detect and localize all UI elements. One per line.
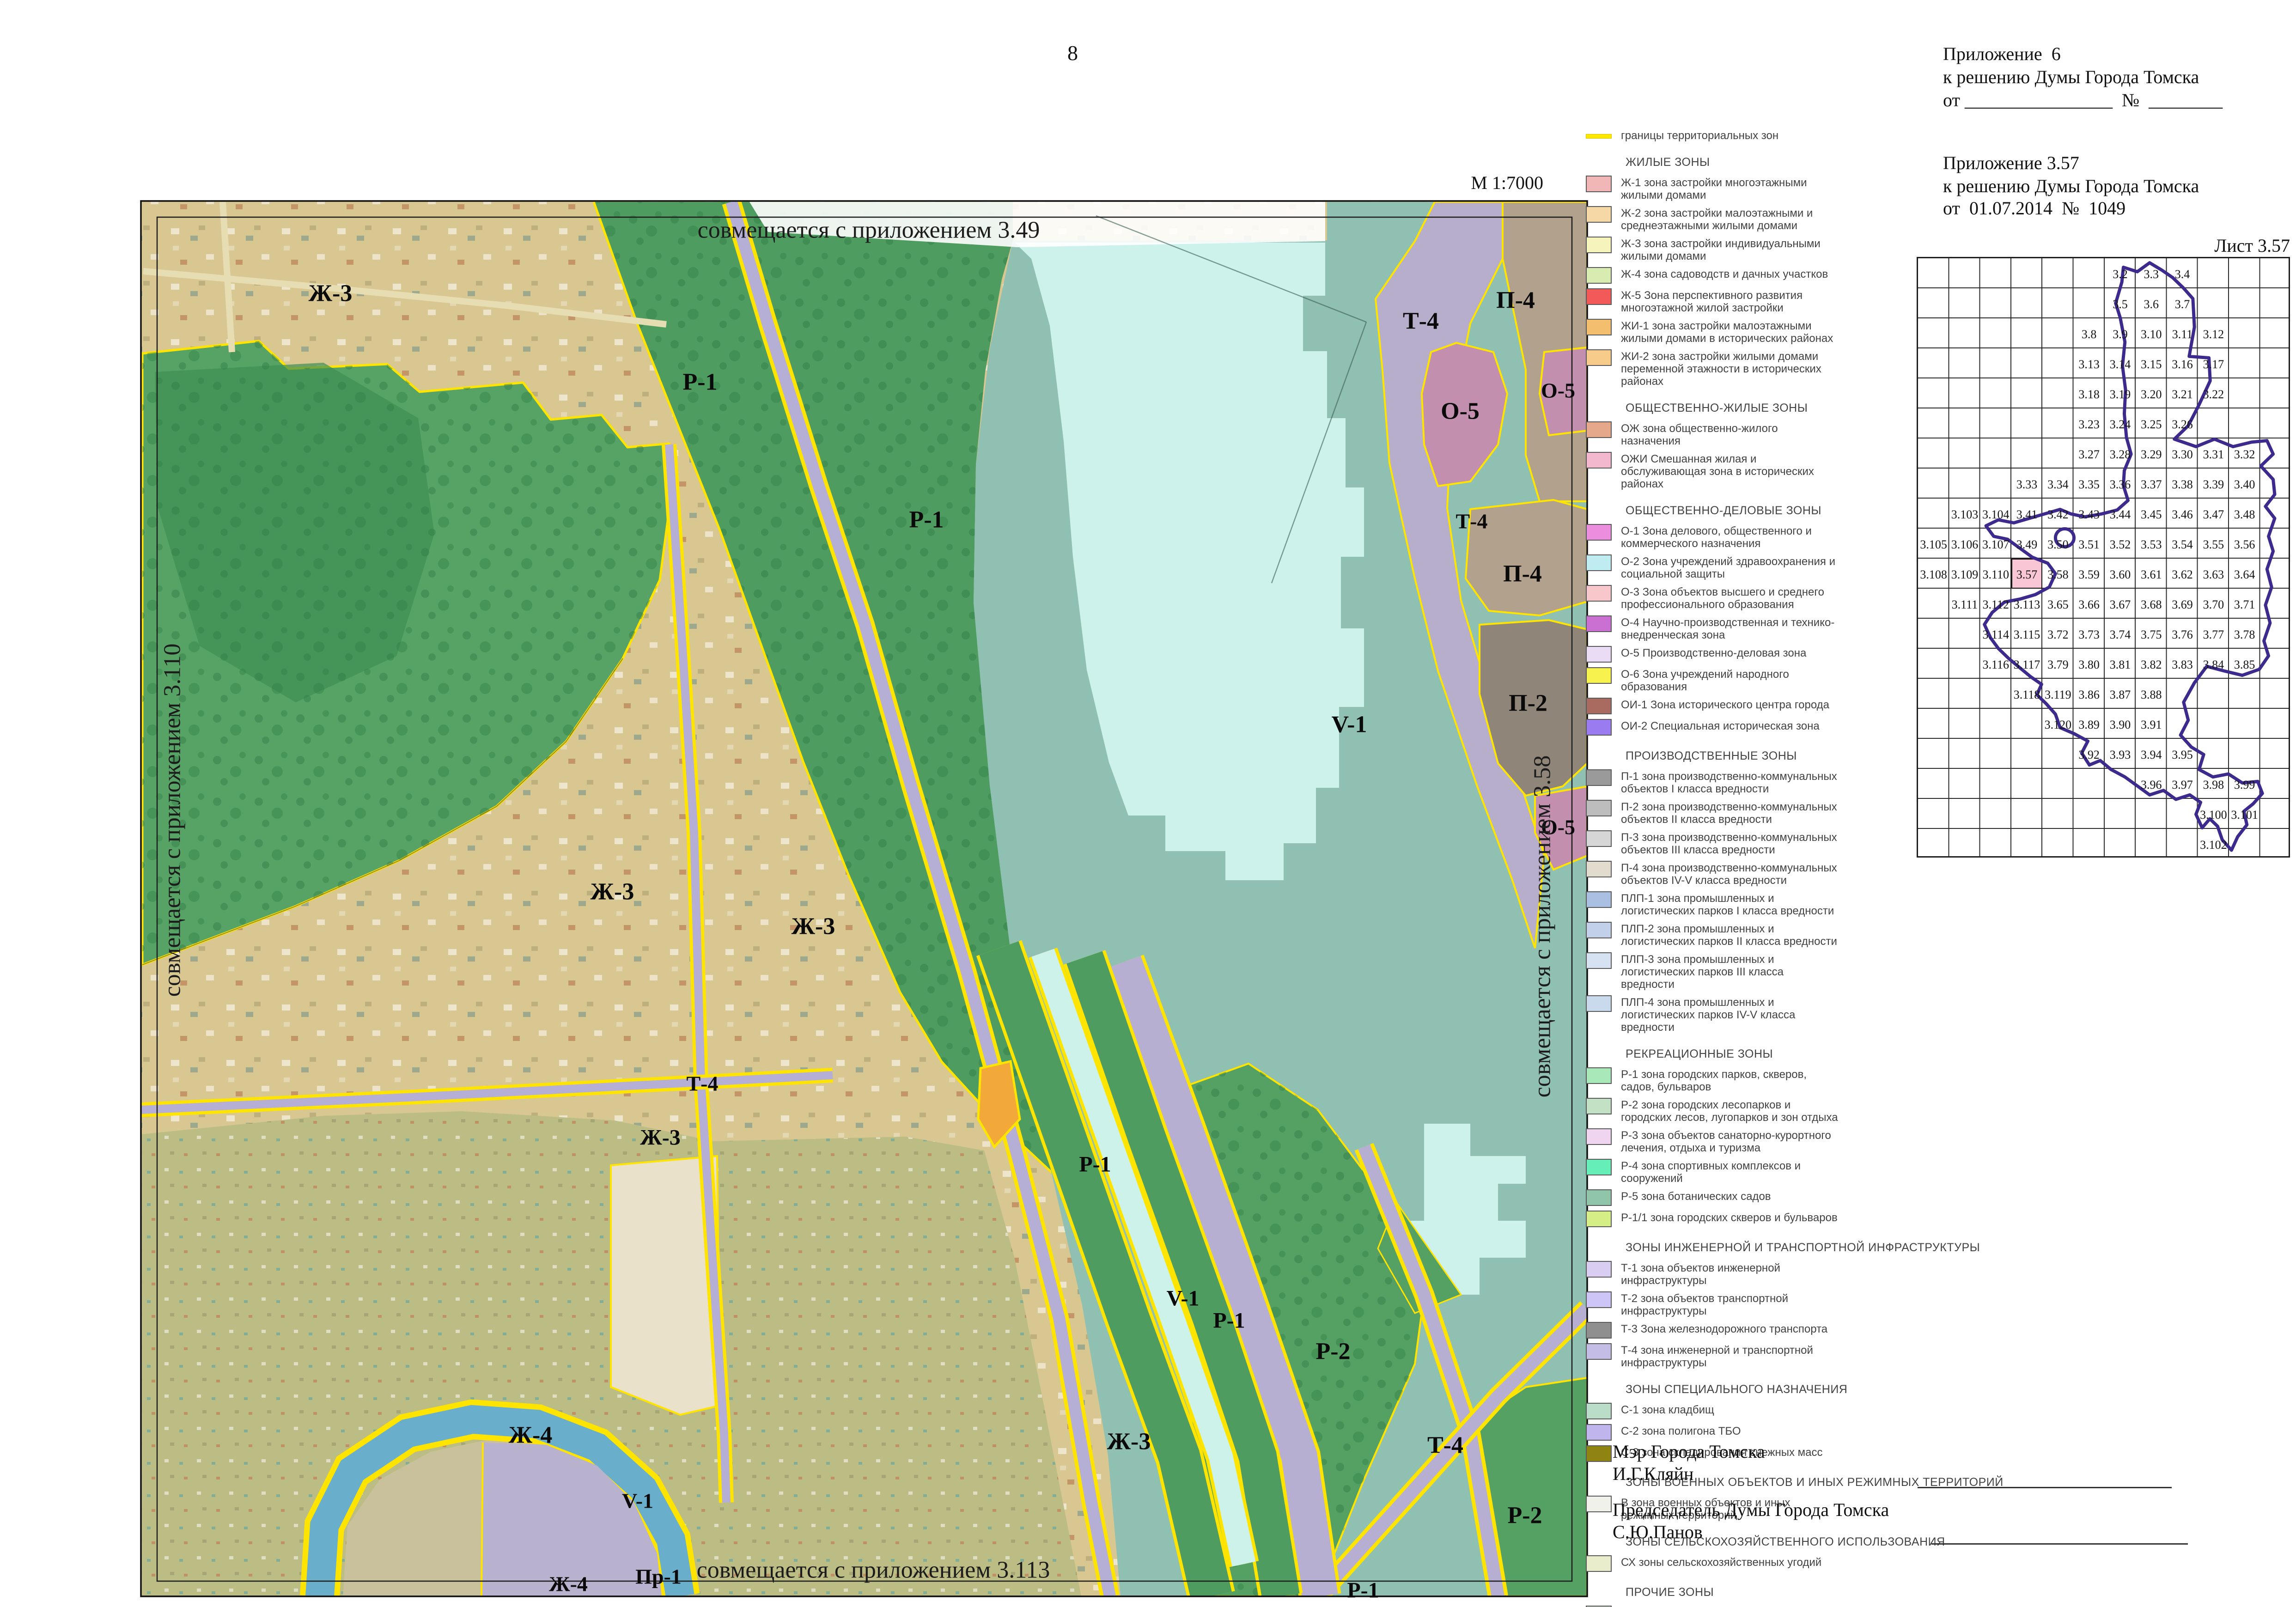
zone-label-Т-4: Т-4: [1456, 509, 1488, 534]
index-cell-3.35: 3.35: [2078, 478, 2100, 492]
zone-label-П-2: П-2: [1509, 690, 1547, 717]
zoning-map-sheet: Ж-3Р-1Р-1Т-4П-4О-5О-5Т-4П-4П-2О-5V-1Ж-3Ж…: [0, 0, 2296, 1607]
zone-label-Ж-3: Ж-3: [1107, 1428, 1151, 1455]
legend-swatch: [1586, 206, 1612, 223]
legend-item: Р-3 зона объектов санаторно-курортного л…: [1586, 1128, 2071, 1154]
index-cell-3.14: 3.14: [2110, 358, 2131, 371]
index-cell-3.83: 3.83: [2172, 658, 2193, 672]
zone-label-Р-2: Р-2: [1315, 1338, 1350, 1365]
legend-swatch: [1586, 1291, 1612, 1308]
index-cell-3.2: 3.2: [2113, 268, 2128, 281]
index-cell-3.3: 3.3: [2144, 268, 2159, 281]
legend-item: Т-1 зона объектов инженерной инфраструкт…: [1586, 1261, 2071, 1287]
legend-item-label: Ж-4 зона садоводств и дачных участков: [1621, 267, 1838, 280]
index-cell-3.8: 3.8: [2082, 328, 2097, 341]
index-cell-3.9: 3.9: [2113, 328, 2128, 341]
legend-swatch: [1586, 922, 1612, 938]
legend-section-header: ЗОНЫ ИНЖЕНЕРНОЙ И ТРАНСПОРТНОЙ ИНФРАСТРУ…: [1626, 1241, 2071, 1254]
appendix-6-line2: к решению Думы Города Томска: [1943, 66, 2199, 89]
edge-label: совмещается с приложением 3.58: [1529, 755, 1556, 1098]
legend: границы территориальных зонЖИЛЫЕ ЗОНЫЖ-1…: [1586, 128, 2071, 1607]
legend-item-label: ПЛП-4 зона промышленных и логистических …: [1621, 995, 1838, 1034]
zone-label-О-5: О-5: [1441, 398, 1480, 425]
legend-item: Р-1/1 зона городских скверов и бульваров: [1586, 1211, 2071, 1227]
zone-label-Ж-3: Ж-3: [591, 878, 634, 906]
legend-item-label: ОИ-2 Специальная историческая зона: [1621, 719, 1838, 732]
index-cell-3.90: 3.90: [2110, 718, 2131, 732]
index-cell-3.13: 3.13: [2078, 358, 2100, 371]
index-cell-3.40: 3.40: [2234, 478, 2255, 492]
legend-swatch: [1586, 646, 1612, 663]
index-cell-3.64: 3.64: [2234, 568, 2255, 582]
index-cell-3.69: 3.69: [2172, 598, 2193, 612]
index-cell-3.75: 3.75: [2141, 628, 2162, 642]
index-cell-3.97: 3.97: [2172, 778, 2193, 792]
index-cell-3.43: 3.43: [2078, 508, 2100, 522]
index-cell-3.55: 3.55: [2203, 538, 2224, 552]
legend-item: Т-2 зона объектов транспортной инфрастру…: [1586, 1291, 2071, 1317]
zone-label-Ж-4: Ж-4: [549, 1572, 588, 1596]
legend-item-label: ЖИ-1 зона застройки малоэтажными жилыми …: [1621, 319, 1838, 345]
legend-item: О-6 Зона учреждений народного образовани…: [1586, 667, 2071, 693]
index-cell-3.45: 3.45: [2141, 508, 2162, 522]
legend-item-label: С-2 зона полигона ТБО: [1621, 1424, 1838, 1437]
index-cell-3.28: 3.28: [2110, 448, 2131, 462]
index-cell-3.59: 3.59: [2078, 568, 2100, 582]
legend-swatch: [1586, 615, 1612, 632]
legend-item: границы территориальных зон: [1586, 128, 2071, 142]
legend-item-label: О-6 Зона учреждений народного образовани…: [1621, 667, 1838, 693]
appendix-6-line1: Приложение 6: [1943, 43, 2061, 66]
index-cell-3.21: 3.21: [2172, 388, 2193, 402]
legend-section-header: ОБЩЕСТВЕННО-ДЕЛОВЫЕ ЗОНЫ: [1626, 504, 2071, 517]
zone-label-О-5: О-5: [1541, 378, 1575, 403]
index-cell-3.27: 3.27: [2078, 448, 2100, 462]
legend-swatch: [1586, 585, 1612, 602]
index-cell-3.71: 3.71: [2234, 598, 2255, 612]
index-cell-3.92: 3.92: [2078, 748, 2100, 762]
index-cell-3.100: 3.100: [2200, 808, 2227, 822]
index-cell-3.31: 3.31: [2203, 448, 2224, 462]
legend-item: О-1 Зона делового, общественного и комме…: [1586, 524, 2071, 550]
legend-item: ОЖИ Смешанная жилая и обслуживающая зона…: [1586, 452, 2071, 490]
legend-item: О-2 Зона учреждений здравоохранения и со…: [1586, 554, 2071, 580]
index-cell-3.94: 3.94: [2141, 748, 2162, 762]
index-cell-3.66: 3.66: [2078, 598, 2100, 612]
zone-label-Ж-3: Ж-3: [792, 913, 835, 940]
index-cell-3.63: 3.63: [2203, 568, 2224, 582]
index-cell-3.26: 3.26: [2172, 418, 2193, 432]
legend-swatch: [1586, 421, 1612, 438]
index-cell-3.99: 3.99: [2234, 778, 2255, 792]
legend-item: ПЛП-3 зона промышленных и логистических …: [1586, 952, 2071, 991]
sheet-number: Лист 3.57: [2172, 235, 2290, 256]
index-cell-3.51: 3.51: [2078, 538, 2100, 552]
index-cell-3.96: 3.96: [2141, 778, 2162, 792]
legend-swatch: [1586, 134, 1612, 139]
zone-label-Ж-3: Ж-3: [640, 1125, 680, 1150]
legend-item-label: границы территориальных зон: [1621, 128, 1838, 142]
zone-label-П-4: П-4: [1496, 287, 1535, 314]
index-cell-3.38: 3.38: [2172, 478, 2193, 492]
legend-item: Т-3 Зона железнодорожного транспорта: [1586, 1322, 2071, 1339]
index-cell-3.18: 3.18: [2078, 388, 2100, 402]
legend-item: ЖИ-1 зона застройки малоэтажными жилыми …: [1586, 319, 2071, 345]
zone-label-Р-1: Р-1: [682, 369, 717, 396]
legend-swatch: [1586, 1424, 1612, 1441]
zone-label-V-1: V-1: [622, 1489, 653, 1513]
legend-item: Ж-1 зона застройки многоэтажными жилыми …: [1586, 176, 2071, 201]
legend-section-header: ПРОИЗВОДСТВЕННЫЕ ЗОНЫ: [1626, 749, 2071, 763]
legend-item: Ж-4 зона садоводств и дачных участков: [1586, 267, 2071, 284]
edge-label: совмещается с приложением 3.113: [697, 1557, 1050, 1584]
index-cell-3.15: 3.15: [2141, 358, 2162, 371]
legend-section-header: РЕКРЕАЦИОННЫЕ ЗОНЫ: [1626, 1047, 2071, 1061]
index-cell-3.39: 3.39: [2203, 478, 2224, 492]
legend-item-label: Т-2 зона объектов транспортной инфрастру…: [1621, 1291, 1838, 1317]
legend-item-label: Р-5 зона ботанических садов: [1621, 1189, 1838, 1203]
legend-item-label: О-1 Зона делового, общественного и комме…: [1621, 524, 1838, 550]
index-cell-3.87: 3.87: [2110, 688, 2131, 702]
legend-item: О-4 Научно-производственная и технико-вн…: [1586, 615, 2071, 641]
index-cell-3.7: 3.7: [2175, 298, 2190, 311]
index-cell-3.70: 3.70: [2203, 598, 2224, 612]
legend-item-label: Т-1 зона объектов инженерной инфраструкт…: [1621, 1261, 1838, 1287]
index-cell-3.54: 3.54: [2172, 538, 2193, 552]
map-scale: М 1:7000: [1432, 172, 1543, 194]
zone-label-Ж-3: Ж-3: [309, 280, 353, 307]
index-cell-3.29: 3.29: [2141, 448, 2162, 462]
legend-item: О-3 Зона объектов высшего и среднего про…: [1586, 585, 2071, 611]
legend-swatch: [1586, 698, 1612, 714]
index-cell-3.6: 3.6: [2144, 298, 2159, 311]
legend-item-label: Т-4 зона инженерной и транспортной инфра…: [1621, 1343, 1838, 1369]
index-cell-3.11: 3.11: [2172, 328, 2193, 341]
legend-swatch: [1586, 1403, 1612, 1419]
index-cell-3.52: 3.52: [2110, 538, 2131, 552]
legend-swatch: [1586, 1322, 1612, 1339]
legend-item: О-5 Производственно-деловая зона: [1586, 646, 2071, 663]
mayor-title: Мэр Города Томска: [1613, 1441, 1765, 1463]
index-cell-3.76: 3.76: [2172, 628, 2193, 642]
index-cell-3.30: 3.30: [2172, 448, 2193, 462]
legend-item-label: Ж-3 зона застройки индивидуальными жилым…: [1621, 237, 1838, 262]
zone-label-Р-1: Р-1: [1213, 1308, 1245, 1333]
legend-item-label: ОИ-1 Зона исторического центра города: [1621, 698, 1838, 711]
legend-item: ПЛП-4 зона промышленных и логистических …: [1586, 995, 2071, 1034]
legend-swatch: [1586, 1067, 1612, 1084]
index-cell-3.93: 3.93: [2110, 748, 2131, 762]
chairman-name: С.Ю.Панов: [1613, 1521, 1703, 1543]
index-cell-3.67: 3.67: [2110, 598, 2131, 612]
index-cell-3.84: 3.84: [2203, 658, 2224, 672]
zone-label-Ж-4: Ж-4: [509, 1422, 553, 1449]
index-cell-3.56: 3.56: [2234, 538, 2255, 552]
legend-item: ОИ-1 Зона исторического центра города: [1586, 698, 2071, 714]
zone-label-Р-2: Р-2: [1507, 1502, 1542, 1529]
legend-swatch: [1586, 769, 1612, 786]
index-cell-3.89: 3.89: [2078, 718, 2100, 732]
legend-item-label: О-2 Зона учреждений здравоохранения и со…: [1621, 554, 1838, 580]
legend-item-label: О-3 Зона объектов высшего и среднего про…: [1621, 585, 1838, 611]
legend-item-label: Т-3 Зона железнодорожного транспорта: [1621, 1322, 1838, 1335]
index-cell-3.10: 3.10: [2141, 328, 2162, 341]
legend-swatch: [1586, 995, 1612, 1012]
index-cell-3.37: 3.37: [2141, 478, 2162, 492]
legend-item-label: П-2 зона производственно-коммунальных об…: [1621, 800, 1838, 826]
legend-item: С-2 зона полигона ТБО: [1586, 1424, 2071, 1441]
legend-item: П-1 зона производственно-коммунальных об…: [1586, 769, 2071, 795]
index-cell-3.91: 3.91: [2141, 718, 2162, 732]
legend-swatch: [1586, 952, 1612, 969]
zone-label-Т-4: Т-4: [1403, 308, 1439, 335]
legend-item-label: Ж-1 зона застройки многоэтажными жилыми …: [1621, 176, 1838, 201]
legend-item: С-1 зона кладбищ: [1586, 1403, 2071, 1419]
zone-label-Пр-1: Пр-1: [635, 1564, 682, 1589]
legend-swatch: [1586, 1496, 1612, 1512]
legend-swatch: [1586, 288, 1612, 305]
legend-item: ПЛП-1 зона промышленных и логистических …: [1586, 891, 2071, 917]
index-cell-3.16: 3.16: [2172, 358, 2193, 371]
legend-item-label: Ж-5 Зона перспективного развития многоэт…: [1621, 288, 1838, 314]
legend-item-label: ПЛП-3 зона промышленных и логистических …: [1621, 952, 1838, 991]
index-cell-3.46: 3.46: [2172, 508, 2193, 522]
legend-item: Р-2 зона городских лесопарков и городски…: [1586, 1098, 2071, 1124]
index-cell-3.101: 3.101: [2231, 808, 2258, 822]
legend-swatch: [1586, 719, 1612, 736]
page-number: 8: [1067, 41, 1078, 65]
index-cell-3.80: 3.80: [2078, 658, 2100, 672]
legend-item: ОЖ зона общественно-жилого назначения: [1586, 421, 2071, 447]
chairman-title: Председатель Думы Города Томска: [1613, 1499, 1889, 1521]
index-cell-3.88: 3.88: [2141, 688, 2162, 702]
index-cell-3.73: 3.73: [2078, 628, 2100, 642]
legend-swatch: [1586, 554, 1612, 571]
chairman-signature-line: [1931, 1543, 2188, 1545]
legend-item-label: Р-4 зона спортивных комплексов и сооруже…: [1621, 1159, 1838, 1185]
index-cell-3.5: 3.5: [2113, 298, 2128, 311]
legend-section-header: ЗОНЫ СПЕЦИАЛЬНОГО НАЗНАЧЕНИЯ: [1626, 1383, 2071, 1396]
index-cell-3.81: 3.81: [2110, 658, 2131, 672]
legend-item-label: Р-3 зона объектов санаторно-курортного л…: [1621, 1128, 1838, 1154]
legend-item: ЖИ-2 зона застройки жилыми домами переме…: [1586, 349, 2071, 388]
legend-item: ОИ-2 Специальная историческая зона: [1586, 719, 2071, 736]
index-cell-3.25: 3.25: [2141, 418, 2162, 432]
index-cell-3.62: 3.62: [2172, 568, 2193, 582]
legend-item-label: О-5 Производственно-деловая зона: [1621, 646, 1838, 659]
legend-section-header: ПРОЧИЕ ЗОНЫ: [1626, 1586, 2071, 1599]
legend-item: Ж-3 зона застройки индивидуальными жилым…: [1586, 237, 2071, 262]
legend-swatch: [1586, 1189, 1612, 1206]
zone-label-Р-1: Р-1: [1079, 1152, 1111, 1177]
legend-section-header: ЖИЛЫЕ ЗОНЫ: [1626, 156, 2071, 169]
mayor-name: И.Г.Кляйн: [1613, 1463, 1693, 1485]
legend-item-label: ОЖ зона общественно-жилого назначения: [1621, 421, 1838, 447]
legend-item: ПЛП-2 зона промышленных и логистических …: [1586, 922, 2071, 948]
legend-swatch: [1586, 861, 1612, 877]
zone-label-Р-1: Р-1: [1347, 1578, 1379, 1603]
index-cell-3.60: 3.60: [2110, 568, 2131, 582]
index-cell-3.36: 3.36: [2110, 478, 2131, 492]
legend-item-label: П-3 зона производственно-коммунальных об…: [1621, 830, 1838, 856]
index-cell-3.32: 3.32: [2234, 448, 2255, 462]
legend-swatch: [1586, 830, 1612, 847]
index-cell-3.20: 3.20: [2141, 388, 2162, 402]
index-cell-3.95: 3.95: [2172, 748, 2193, 762]
zone-label-Р-1: Р-1: [909, 506, 944, 534]
index-cell-3.19: 3.19: [2110, 388, 2131, 402]
legend-item: Р-5 зона ботанических садов: [1586, 1189, 2071, 1206]
appendix-6-line3: от ________________ № ________: [1943, 89, 2223, 112]
zone-label-V-1: V-1: [1166, 1286, 1199, 1311]
zone-label-V-1: V-1: [1331, 711, 1367, 738]
legend-item-label: П-4 зона производственно-коммунальных об…: [1621, 861, 1838, 887]
zone-label-Т-4: Т-4: [1427, 1432, 1463, 1459]
legend-item-label: Ж-2 зона застройки малоэтажными и средне…: [1621, 206, 1838, 232]
index-cell-3.4: 3.4: [2175, 268, 2190, 281]
index-cell-3.53: 3.53: [2141, 538, 2162, 552]
legend-item: П-2 зона производственно-коммунальных об…: [1586, 800, 2071, 826]
legend-swatch: [1586, 1555, 1612, 1572]
legend-swatch: [1586, 176, 1612, 192]
index-cell-3.24: 3.24: [2110, 418, 2131, 432]
legend-swatch: [1586, 1211, 1612, 1227]
index-cell-3.78: 3.78: [2234, 628, 2255, 642]
legend-item: П-3 зона производственно-коммунальных об…: [1586, 830, 2071, 856]
legend-swatch: [1586, 1098, 1612, 1114]
index-cell-3.82: 3.82: [2141, 658, 2162, 672]
legend-swatch: [1586, 667, 1612, 684]
index-cell-3.44: 3.44: [2110, 508, 2131, 522]
legend-item: П-4 зона производственно-коммунальных об…: [1586, 861, 2071, 887]
index-cell-3.47: 3.47: [2203, 508, 2224, 522]
index-cell-3.74: 3.74: [2110, 628, 2131, 642]
legend-item-label: Р-2 зона городских лесопарков и городски…: [1621, 1098, 1838, 1124]
edge-label: совмещается с приложением 3.110: [159, 644, 186, 997]
legend-item: Ж-5 Зона перспективного развития многоэт…: [1586, 288, 2071, 314]
legend-swatch: [1586, 452, 1612, 469]
legend-swatch: [1586, 891, 1612, 908]
index-cell-3.68: 3.68: [2141, 598, 2162, 612]
legend-item-label: П-1 зона производственно-коммунальных об…: [1621, 769, 1838, 795]
index-cell-3.86: 3.86: [2078, 688, 2100, 702]
index-cell-3.102: 3.102: [2200, 838, 2227, 852]
index-cell-3.12: 3.12: [2203, 328, 2224, 341]
legend-section-header: ОБЩЕСТВЕННО-ЖИЛЫЕ ЗОНЫ: [1626, 402, 2071, 415]
legend-item-label: ПЛП-1 зона промышленных и логистических …: [1621, 891, 1838, 917]
legend-item-label: Р-1/1 зона городских скверов и бульваров: [1621, 1211, 1838, 1224]
legend-item: СХ зоны сельскохозяйственных угодий: [1586, 1555, 2071, 1572]
legend-item: Р-4 зона спортивных комплексов и сооруже…: [1586, 1159, 2071, 1185]
legend-swatch: [1586, 267, 1612, 284]
legend-swatch: [1586, 524, 1612, 541]
index-cell-3.22: 3.22: [2203, 388, 2224, 402]
legend-swatch: [1586, 800, 1612, 816]
index-cell-3.23: 3.23: [2078, 418, 2100, 432]
legend-item-label: СХ зоны сельскохозяйственных угодий: [1621, 1555, 1838, 1569]
index-cell-3.77: 3.77: [2203, 628, 2224, 642]
legend-item: Ж-2 зона застройки малоэтажными и средне…: [1586, 206, 2071, 232]
legend-item: Р-1 зона городских парков, скверов, садо…: [1586, 1067, 2071, 1093]
zone-label-Т-4: Т-4: [687, 1071, 719, 1096]
index-cell-3.61: 3.61: [2141, 568, 2162, 582]
legend-swatch: [1586, 237, 1612, 253]
legend-swatch: [1586, 1343, 1612, 1360]
legend-swatch: [1586, 1261, 1612, 1278]
legend-item-label: Р-1 зона городских парков, скверов, садо…: [1621, 1067, 1838, 1093]
edge-label: совмещается с приложением 3.49: [698, 217, 1040, 244]
index-cell-3.98: 3.98: [2203, 778, 2224, 792]
index-cell-3.85: 3.85: [2234, 658, 2255, 672]
legend-item-label: С-1 зона кладбищ: [1621, 1403, 1838, 1416]
index-cell-3.17: 3.17: [2203, 358, 2224, 371]
legend-item-label: ЖИ-2 зона застройки жилыми домами переме…: [1621, 349, 1838, 388]
legend-swatch: [1586, 349, 1612, 366]
legend-item-label: ПЛП-2 зона промышленных и логистических …: [1621, 922, 1838, 948]
mayor-signature-line: [1918, 1487, 2172, 1488]
legend-item: Т-4 зона инженерной и транспортной инфра…: [1586, 1343, 2071, 1369]
legend-item-label: ОЖИ Смешанная жилая и обслуживающая зона…: [1621, 452, 1838, 490]
zone-label-П-4: П-4: [1503, 560, 1542, 588]
legend-swatch: [1586, 1128, 1612, 1145]
legend-swatch: [1586, 319, 1612, 335]
legend-swatch: [1586, 1159, 1612, 1175]
legend-item-label: О-4 Научно-производственная и технико-вн…: [1621, 615, 1838, 641]
index-cell-3.48: 3.48: [2234, 508, 2255, 522]
legend-swatch: [1586, 1445, 1612, 1462]
